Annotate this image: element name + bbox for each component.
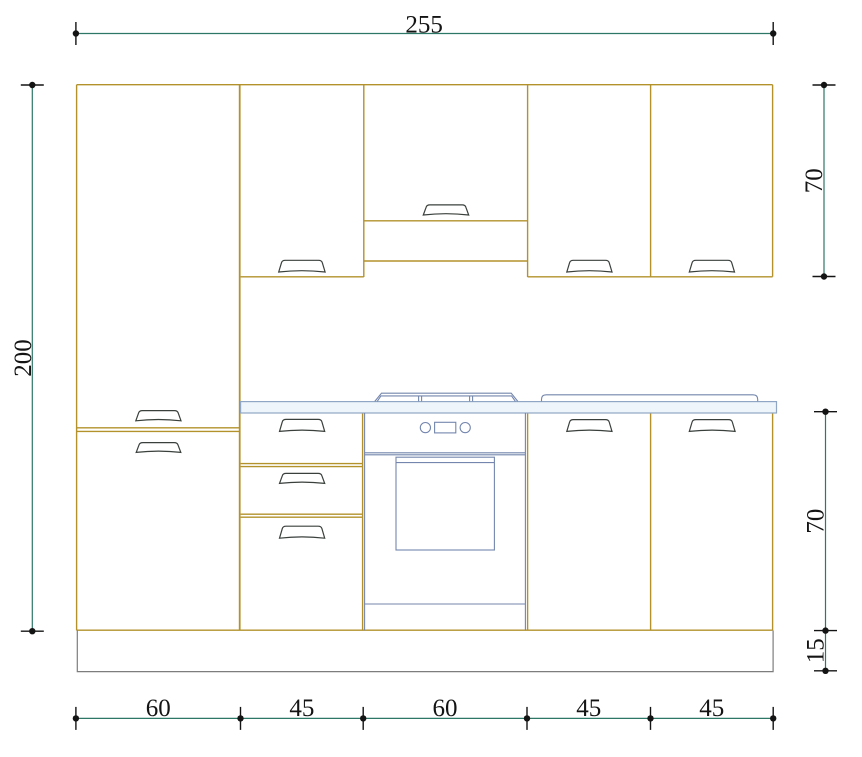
svg-text:15: 15: [802, 638, 829, 663]
svg-text:255: 255: [405, 12, 443, 39]
svg-text:45: 45: [289, 695, 314, 722]
svg-text:60: 60: [433, 695, 458, 722]
svg-text:45: 45: [576, 695, 601, 722]
svg-text:45: 45: [699, 695, 724, 722]
svg-text:60: 60: [146, 695, 171, 722]
svg-text:70: 70: [801, 168, 828, 193]
svg-text:200: 200: [10, 339, 37, 377]
svg-text:70: 70: [802, 509, 829, 534]
